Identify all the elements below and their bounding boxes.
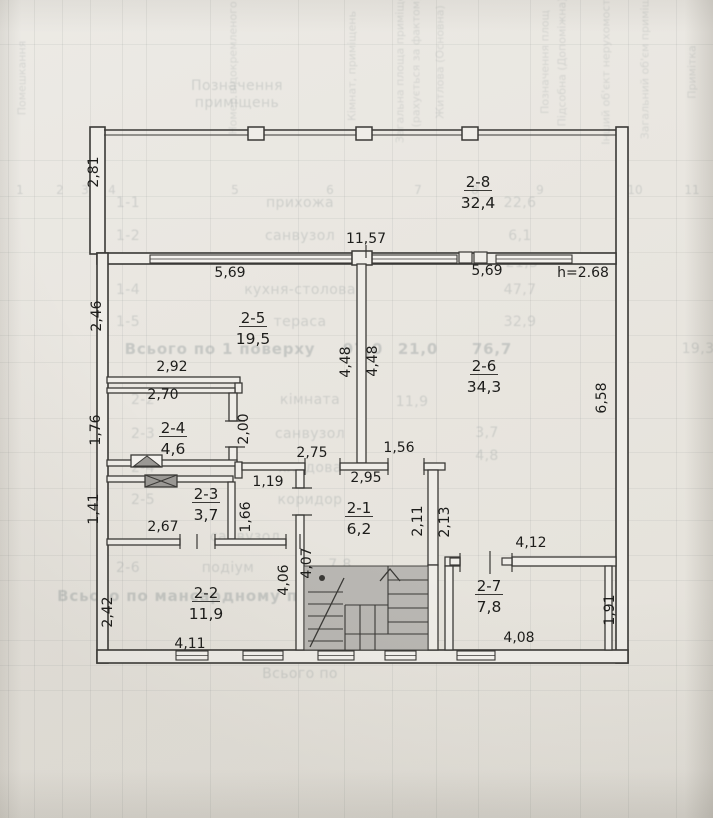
dimension-label: 1,66 — [238, 501, 254, 532]
dimension-label: 1,19 — [252, 474, 283, 490]
dimension-label: 2,92 — [156, 359, 187, 375]
dimension-label: 4,06 — [276, 564, 292, 595]
wall-pier — [459, 252, 472, 263]
dimension-label: h=2.68 — [557, 265, 609, 281]
room-area-label: 6,2 — [347, 520, 372, 538]
wall-pier — [474, 252, 487, 263]
dimension-label: 6,58 — [594, 382, 610, 413]
wall-inner — [107, 460, 237, 466]
room-area-label: 34,3 — [467, 378, 502, 396]
room-id-label: 2-8 — [466, 173, 491, 191]
wall-inner — [296, 470, 304, 488]
dimension-label: 4,48 — [338, 346, 354, 377]
dimension-label: 2,95 — [350, 470, 381, 486]
dimension-label: 1,41 — [86, 493, 102, 524]
door-jamb — [450, 558, 460, 565]
floor-plan-drawing: 2,8111,575,695,69h=2.682,462,922,701,762… — [0, 0, 713, 818]
room-area-label: 4,6 — [161, 440, 186, 458]
stairs-start-marker — [319, 575, 325, 581]
wall-inner — [215, 539, 286, 545]
wall-post — [356, 127, 372, 140]
room-id-label: 2-5 — [241, 309, 266, 327]
dimension-label: 5,69 — [471, 263, 502, 279]
room-id-label: 2-7 — [477, 577, 502, 595]
door-jamb — [502, 558, 512, 565]
dimension-label: 1,56 — [383, 440, 414, 456]
dimension-label: 1,91 — [602, 594, 618, 625]
dimension-label: 11,57 — [346, 231, 386, 247]
dimension-label: 2,70 — [147, 387, 178, 403]
wall-inner — [428, 565, 438, 650]
room-id-label: 2-4 — [161, 419, 186, 437]
dimension-label: 2,42 — [100, 596, 116, 627]
dimension-label: 4,12 — [515, 535, 546, 551]
dimension-label: 5,69 — [214, 265, 245, 281]
dimension-label: 2,13 — [437, 506, 453, 537]
dimension-label: 1,76 — [88, 414, 104, 445]
wall-post — [462, 127, 478, 140]
wall-inner — [235, 462, 242, 478]
room-area-label: 32,4 — [461, 194, 496, 212]
dimension-label: 4,07 — [299, 547, 315, 578]
room-area-label: 7,8 — [477, 598, 502, 616]
wall-inner — [340, 463, 388, 470]
wall-inner — [445, 566, 453, 650]
room-id-label: 2-2 — [194, 584, 219, 602]
dimension-label: 4,08 — [503, 630, 534, 646]
dimension-label: 4,48 — [365, 345, 381, 376]
dimension-label: 2,11 — [410, 505, 426, 536]
scanned-floor-plan-page: ПомешканняНомер відокремленогоКімнат, пр… — [0, 0, 713, 818]
wall-pier — [352, 251, 372, 265]
dimension-label: 4,11 — [174, 636, 205, 652]
wall-outer-right — [616, 127, 628, 663]
wall-inner — [512, 557, 616, 566]
wall-inner — [107, 377, 240, 383]
wall-inner — [424, 463, 445, 470]
wall-terrace-left — [90, 127, 105, 254]
dimension-label: 2,75 — [296, 445, 327, 461]
room-area-label: 11,9 — [189, 605, 224, 623]
dimension-label: 2,46 — [89, 300, 105, 331]
wall-inner — [107, 539, 180, 545]
room-id-label: 2-6 — [472, 357, 497, 375]
room-area-label: 19,5 — [236, 330, 271, 348]
wall-inner — [235, 383, 242, 393]
room-id-label: 2-3 — [194, 485, 219, 503]
wall-post — [248, 127, 264, 140]
room-area-label: 3,7 — [194, 506, 219, 524]
dimension-label: 2,67 — [147, 519, 178, 535]
dimension-label: 2,00 — [236, 413, 252, 444]
dimension-label: 2,81 — [86, 156, 102, 187]
wall-inner — [242, 463, 305, 470]
wall-inner — [228, 482, 235, 539]
room-id-label: 2-1 — [347, 499, 372, 517]
